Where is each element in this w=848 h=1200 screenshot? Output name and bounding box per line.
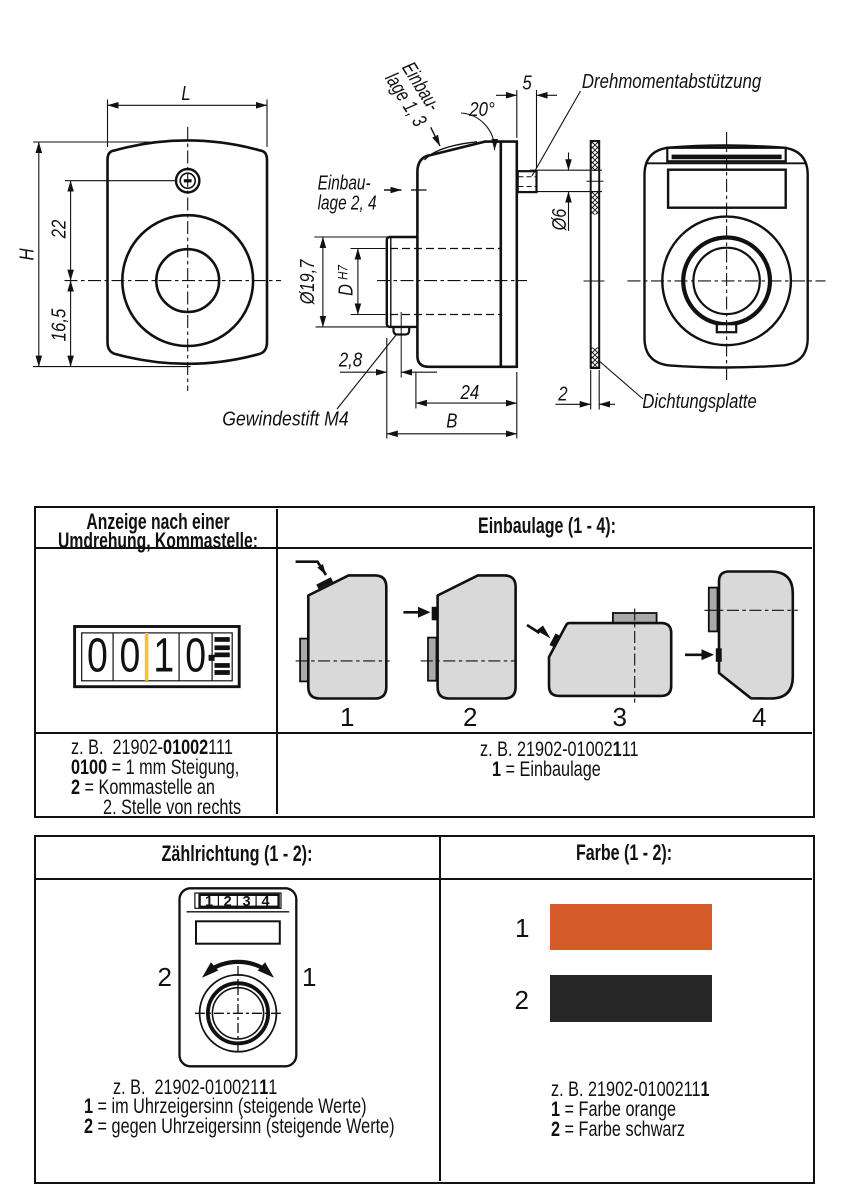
svg-text:Dichtungsplatte: Dichtungsplatte	[642, 389, 756, 412]
svg-text:D: D	[334, 284, 357, 296]
svg-text:2,8: 2,8	[338, 348, 363, 371]
svg-text:1: 1	[153, 629, 174, 683]
svg-text:Ø6: Ø6	[547, 208, 570, 232]
svg-text:2: 2	[224, 894, 232, 910]
svg-text:0: 0	[185, 629, 206, 683]
svg-text:3: 3	[243, 894, 251, 910]
svg-text:22: 22	[47, 220, 70, 240]
svg-text:B: B	[446, 409, 457, 432]
svg-text:Gewindestift M4: Gewindestift M4	[222, 408, 348, 431]
svg-text:24: 24	[460, 380, 480, 403]
svg-text:H: H	[15, 248, 38, 261]
svg-text:Ø19,7: Ø19,7	[295, 259, 318, 305]
svg-text:lage 2, 4: lage 2, 4	[318, 191, 377, 214]
svg-text:16,5: 16,5	[47, 308, 70, 341]
svg-text:0: 0	[87, 629, 108, 683]
svg-text:0: 0	[119, 629, 140, 683]
svg-text:4: 4	[261, 894, 269, 910]
svg-text:1: 1	[205, 894, 213, 910]
svg-text:2: 2	[557, 382, 567, 405]
svg-text:H7: H7	[334, 264, 350, 279]
svg-text:20°: 20°	[468, 98, 494, 121]
svg-text:L: L	[181, 82, 190, 105]
svg-text:Drehmomentabstützung: Drehmomentabstützung	[582, 69, 762, 92]
svg-text:5: 5	[522, 71, 532, 94]
